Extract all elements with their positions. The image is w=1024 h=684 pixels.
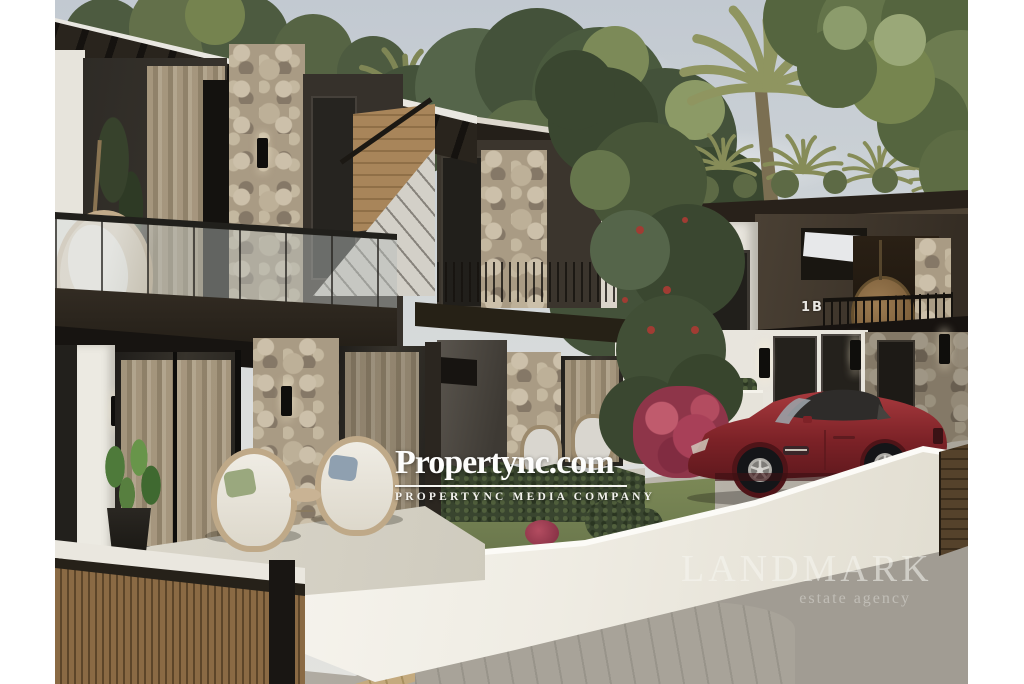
wooden-gate — [55, 552, 305, 684]
side-table — [289, 488, 321, 502]
watermark-tagline-text: PROPERTYNC MEDIA COMPANY — [395, 491, 627, 503]
watermark-landmark: LANDMARK estate agency — [681, 550, 921, 608]
agency-subtitle-text: estate agency — [681, 590, 921, 608]
door-mullion — [173, 352, 177, 552]
side-mirror — [803, 416, 812, 423]
side-vent-chrome — [785, 449, 807, 451]
taillight — [933, 428, 943, 444]
front-wheel — [737, 447, 783, 493]
left-villa — [55, 0, 485, 620]
watermark-brand-text: Propertync.com — [395, 444, 627, 482]
watermark-propertync: Propertync.com PROPERTYNC MEDIA COMPANY — [395, 444, 627, 503]
agency-logo-row: LANDMARK — [681, 550, 921, 588]
listing-photo: 1B — [55, 0, 968, 684]
wall-sconce — [281, 386, 292, 416]
door-handle — [833, 436, 855, 439]
chair-pillow — [223, 468, 257, 499]
lounge-chair — [211, 448, 297, 552]
lounge-chair — [315, 436, 399, 536]
watermark-divider — [395, 485, 627, 487]
gate-post — [269, 560, 295, 684]
ground-shadow-corner — [55, 345, 79, 567]
gate-panel-wood — [939, 440, 968, 558]
pink-flower-bush — [525, 520, 559, 546]
wall-sconce — [257, 138, 268, 168]
chair-pillow — [327, 454, 358, 482]
screenshot-canvas: 1B — [0, 0, 1024, 684]
agency-name-text: LANDMARK — [681, 550, 933, 588]
